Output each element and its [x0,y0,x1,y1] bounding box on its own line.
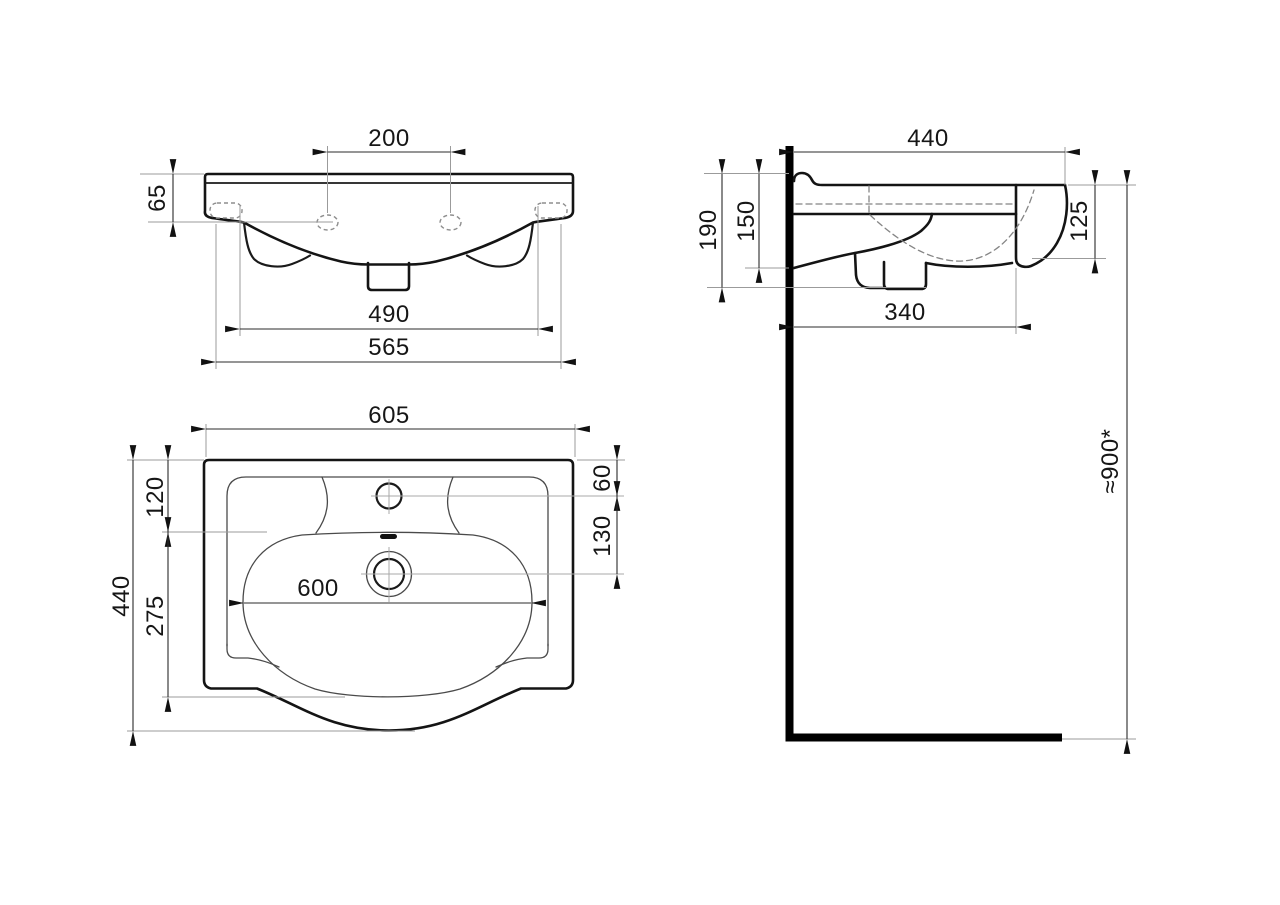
dim-rim-height: 65 [144,184,171,212]
side-drain-outlet [884,262,926,289]
plan-deck-curve-right [448,477,459,533]
dim-overall-depth: 440 [907,125,949,152]
plan-inner-rim [227,477,548,646]
dim-bowl-width: 600 [297,575,339,602]
dim-rear-to-deck: 120 [142,476,169,518]
side-trap-bump [855,253,884,288]
dim-plan-overall-depth: 440 [108,575,135,617]
plan-drain-crosshair [361,547,417,602]
washbasin-technical-drawing: 200 65 490 565 [0,0,1280,905]
front-view: 200 65 490 565 [140,125,573,369]
drawing-canvas: 200 65 490 565 [0,0,1280,905]
front-tap-hole-right [440,215,461,230]
plan-overflow-slot [380,534,397,539]
plan-extension-lines [127,424,625,731]
dim-front-edge-height: 125 [1066,200,1093,242]
dim-wall-to-outlet: 340 [884,299,926,326]
dim-tap-hole-offset: 60 [589,464,616,492]
side-view: 440 190 150 125 340 ≈900* [695,125,1136,739]
plan-deck-curve-left [316,477,327,533]
dim-wall-to-outlet-bottom: 190 [695,209,722,251]
dim-deck-to-bowl-front: 275 [142,595,169,637]
front-fixing-hole-left [210,203,242,218]
dim-body-width: 565 [368,334,410,361]
front-fixing-hole-right [535,203,567,218]
plan-bowl [243,532,532,697]
dim-overall-width: 605 [368,402,410,429]
front-basin-outline [205,174,573,265]
front-drain-outlet [368,263,409,290]
dim-wall-to-bowl-underside: 150 [733,200,760,242]
side-basin-top-profile [794,173,1065,185]
side-bowl-bottom-visible [926,263,1012,267]
dim-installation-height: ≈900* [1097,428,1124,493]
side-hidden-bowl-curve [870,190,1034,261]
plan-view: 605 440 120 275 60 130 600 [108,402,625,731]
dim-tap-hole-spacing: 200 [368,125,410,152]
plan-tap-crosshair [371,479,407,514]
side-bullnose-front [1016,185,1067,267]
side-bowl-underside [794,214,932,268]
wall-and-floor-line [790,146,1063,738]
dim-fixing-hole-spacing: 490 [368,301,410,328]
dim-tap-to-drain: 130 [589,515,616,557]
front-extension-lines [140,146,561,369]
